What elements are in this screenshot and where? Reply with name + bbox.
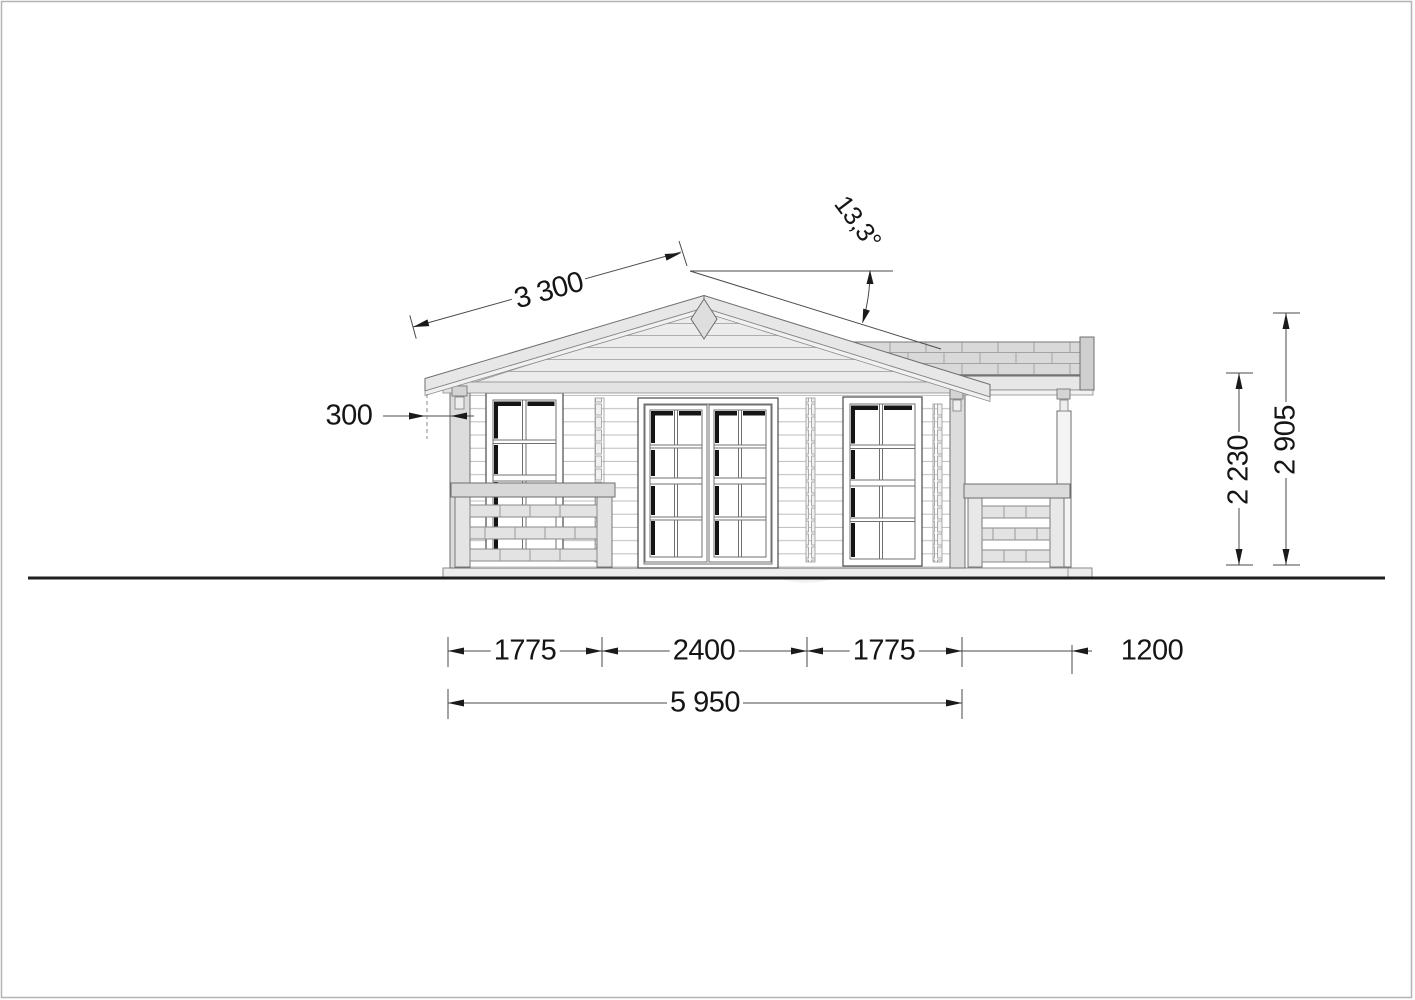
log-joint-strip <box>806 398 815 562</box>
door-leaf-left <box>645 405 707 562</box>
dim-width-center: 2400 <box>670 637 739 666</box>
base-platform <box>443 568 1092 577</box>
porch-railing <box>964 484 1070 567</box>
dim-wall-height: 2 230 <box>1225 432 1254 508</box>
log-joint-strip <box>933 404 942 562</box>
dim-width-left: 1775 <box>491 637 560 666</box>
corner-post-right <box>950 386 965 568</box>
house-elevation-svg <box>0 0 1415 1000</box>
railing-top-rail <box>451 483 615 497</box>
window-right <box>843 397 922 566</box>
door-double <box>638 398 778 568</box>
dim-width-right: 1775 <box>850 637 919 666</box>
dim-ridge-height: 2 905 <box>1272 402 1301 478</box>
eave-trim <box>443 382 965 393</box>
door-leaf-right <box>709 405 771 562</box>
dim-porch-width: 1200 <box>1118 637 1187 666</box>
elevation-drawing-canvas: 3 300 13,3° 300 2 230 2 905 1775 2400 17… <box>0 0 1415 1000</box>
dim-roof-overhang: 300 <box>323 402 376 431</box>
dim-total-width: 5 950 <box>667 689 743 718</box>
porch-roof-end-cap <box>1080 337 1094 390</box>
